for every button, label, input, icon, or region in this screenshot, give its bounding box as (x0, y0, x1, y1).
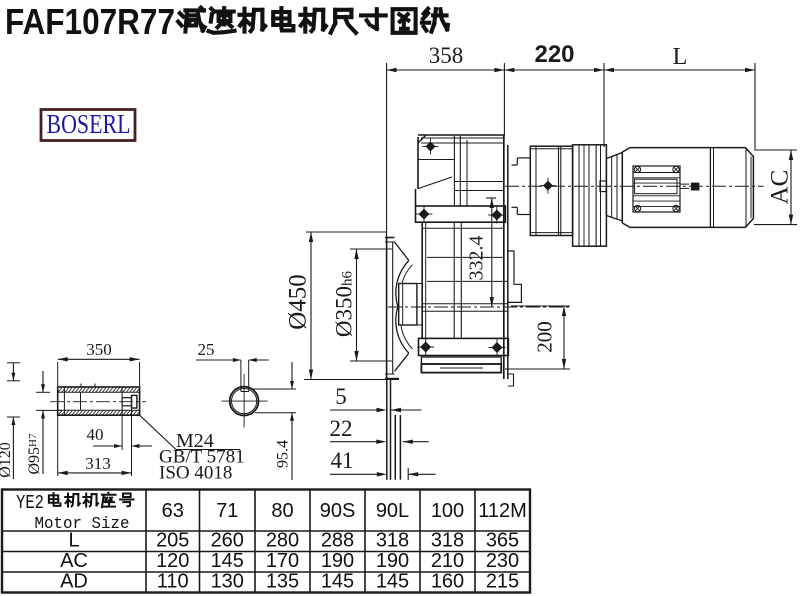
svg-text:80: 80 (271, 500, 293, 522)
svg-text:41: 41 (331, 448, 354, 473)
svg-text:FAF107R77: FAF107R77 (5, 1, 175, 42)
svg-text:365: 365 (486, 530, 519, 552)
svg-text:280: 280 (266, 530, 299, 552)
svg-text:120: 120 (156, 550, 189, 572)
svg-text:160: 160 (431, 571, 464, 593)
svg-text:145: 145 (321, 571, 354, 593)
svg-text:5: 5 (335, 384, 347, 409)
svg-text:145: 145 (211, 550, 244, 572)
svg-text:YE2: YE2 (16, 492, 44, 514)
svg-text:313: 313 (85, 454, 111, 473)
svg-text:112M: 112M (478, 500, 527, 522)
svg-text:AC: AC (60, 550, 88, 572)
svg-text:170: 170 (266, 550, 299, 572)
svg-text:332.4: 332.4 (466, 236, 488, 281)
svg-text:Ø120: Ø120 (0, 442, 14, 478)
svg-text:145: 145 (376, 571, 409, 593)
svg-text:190: 190 (376, 550, 409, 572)
svg-text:40: 40 (87, 425, 104, 444)
svg-text:90L: 90L (376, 500, 409, 522)
svg-text:220: 220 (534, 41, 574, 68)
svg-text:200: 200 (533, 321, 557, 353)
svg-text:63: 63 (162, 500, 184, 522)
svg-text:BOSERL: BOSERL (47, 109, 131, 139)
svg-text:ISO 4018: ISO 4018 (159, 463, 232, 484)
svg-text:358: 358 (429, 43, 464, 68)
svg-text:AC: AC (767, 170, 794, 205)
svg-text:Ø450: Ø450 (285, 274, 312, 330)
svg-text:Motor Size: Motor Size (35, 515, 130, 534)
svg-text:288: 288 (321, 530, 354, 552)
svg-text:L: L (673, 44, 688, 70)
svg-text:130: 130 (211, 571, 244, 593)
svg-text:190: 190 (321, 550, 354, 572)
svg-text:110: 110 (157, 571, 189, 593)
svg-text:71: 71 (216, 500, 238, 522)
svg-text:215: 215 (486, 571, 519, 593)
svg-text:318: 318 (431, 530, 464, 552)
svg-text:350: 350 (86, 340, 112, 359)
svg-text:22: 22 (330, 416, 353, 441)
svg-text:90S: 90S (320, 500, 356, 522)
svg-text:205: 205 (156, 530, 189, 552)
svg-text:25: 25 (198, 340, 215, 359)
svg-text:318: 318 (376, 530, 409, 552)
svg-text:L: L (68, 530, 79, 552)
svg-text:100: 100 (431, 500, 464, 522)
svg-text:210: 210 (431, 550, 464, 572)
svg-text:135: 135 (266, 571, 299, 593)
svg-text:230: 230 (486, 550, 519, 572)
svg-text:260: 260 (211, 530, 244, 552)
svg-text:AD: AD (60, 571, 88, 593)
svg-text:95.4: 95.4 (275, 440, 292, 468)
